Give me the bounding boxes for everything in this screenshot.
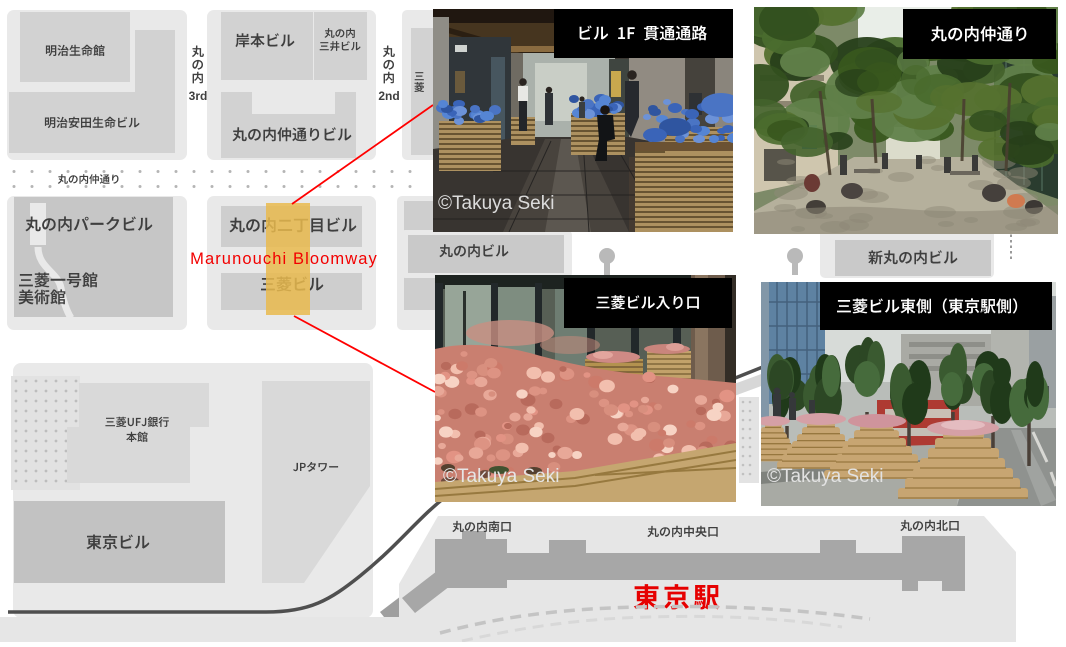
svg-text:©Takuya Seki: ©Takuya Seki bbox=[438, 193, 554, 214]
svg-text:2nd: 2nd bbox=[378, 89, 399, 103]
svg-text:Marunouchi Bloomway: Marunouchi Bloomway bbox=[190, 250, 378, 268]
svg-text:3rd: 3rd bbox=[189, 89, 208, 103]
svg-text:©Takuya Seki: ©Takuya Seki bbox=[443, 466, 559, 487]
svg-text:©Takuya Seki: ©Takuya Seki bbox=[767, 466, 883, 487]
